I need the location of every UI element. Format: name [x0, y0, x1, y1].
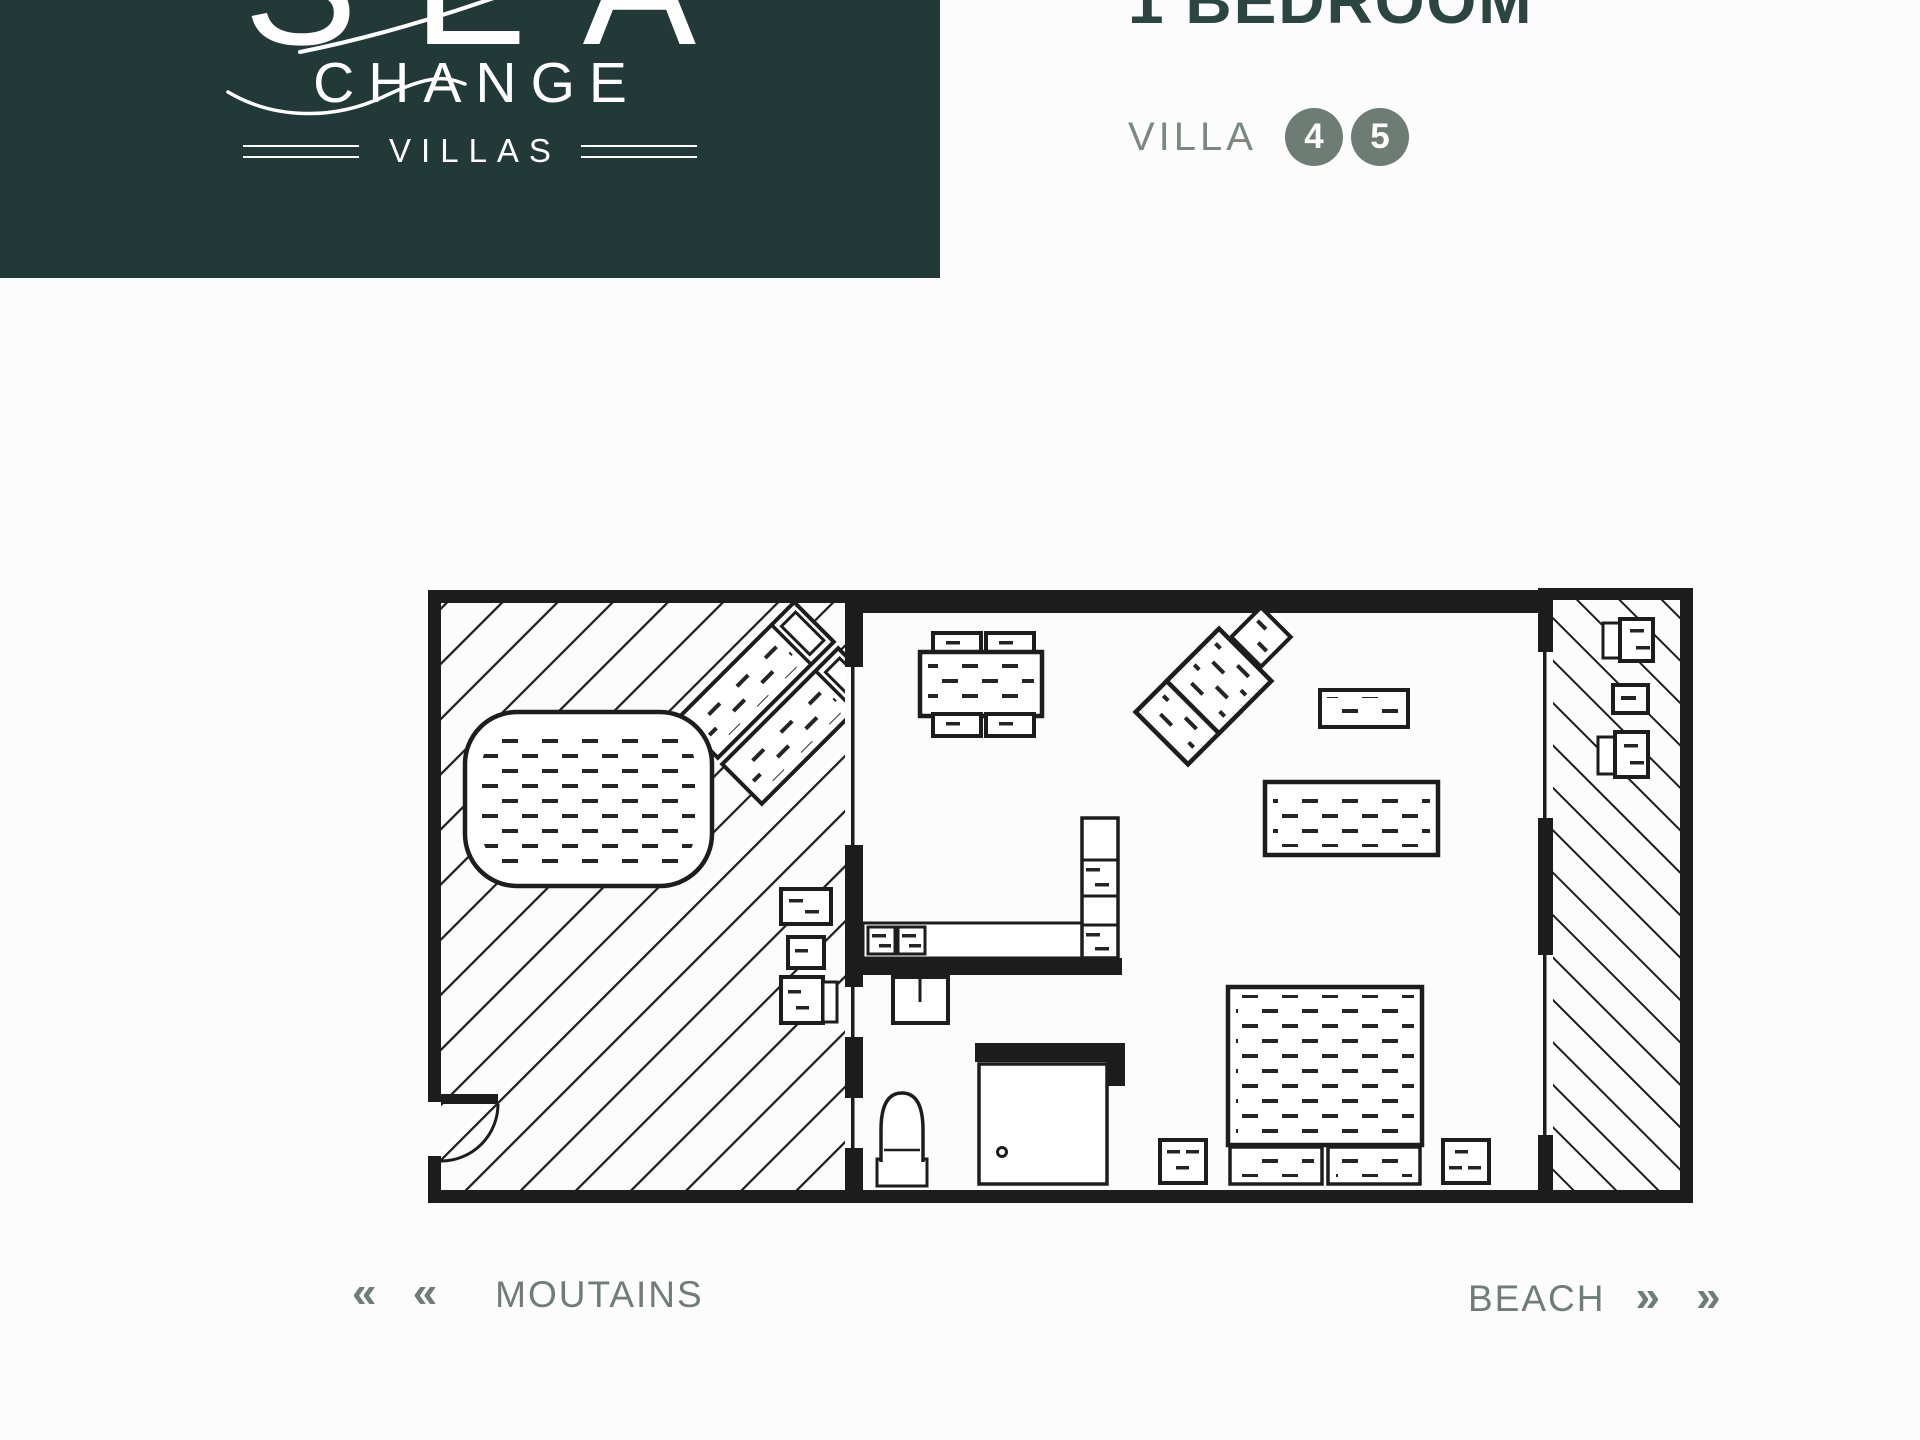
wall-left-upper	[428, 590, 441, 1102]
wall-entry	[975, 1043, 1125, 1062]
right-arrows-icon: » »	[1635, 1272, 1732, 1322]
nightstand	[1160, 1140, 1206, 1183]
kitchen-sink	[868, 927, 895, 954]
window	[851, 987, 855, 1037]
wall-top-right	[1538, 588, 1693, 600]
sliding-door	[851, 667, 855, 845]
door-knob	[998, 1148, 1007, 1157]
deck-side-table	[788, 937, 824, 968]
hot-tub	[465, 712, 712, 886]
window	[851, 1098, 855, 1148]
deck-chair	[1598, 732, 1648, 777]
wall-door-stub	[441, 1094, 498, 1104]
window	[1543, 955, 1547, 1135]
entry-door	[979, 1064, 1107, 1184]
nightstand	[1443, 1140, 1489, 1183]
floor-plan	[0, 0, 1920, 1440]
sliding-door	[1543, 652, 1547, 818]
kitchen-sink	[898, 927, 925, 954]
mountains-direction: « « MOUTAINS	[352, 1268, 704, 1318]
kitchen-tall-unit	[1082, 818, 1118, 958]
deck-chair	[781, 889, 831, 924]
left-arrows-icon: « «	[352, 1268, 449, 1318]
coffee-table	[1320, 690, 1408, 727]
deck-side-table	[1613, 685, 1648, 713]
beach-direction: BEACH » »	[1468, 1272, 1733, 1322]
dining-set	[920, 633, 1042, 736]
wall-right	[1680, 588, 1693, 1203]
wall-bottom	[428, 1190, 1693, 1203]
page: SEA CHANGE VILLAS 1 BEDROOM VILLA 4 5	[0, 0, 1920, 1440]
deck-chair	[1603, 619, 1653, 661]
beach-label: BEACH	[1468, 1278, 1605, 1320]
shower	[893, 977, 948, 1023]
bed	[1228, 987, 1422, 1184]
deck-chair	[781, 977, 837, 1023]
wall-left-lower	[428, 1156, 441, 1203]
sofa	[1265, 782, 1438, 855]
wall-kitchen	[845, 958, 1122, 975]
kitchen-counter	[863, 923, 1083, 958]
wall-top-living	[848, 590, 1553, 613]
wall-top-left	[428, 590, 863, 603]
toilet	[877, 1093, 927, 1186]
mountains-label: MOUTAINS	[495, 1274, 704, 1316]
